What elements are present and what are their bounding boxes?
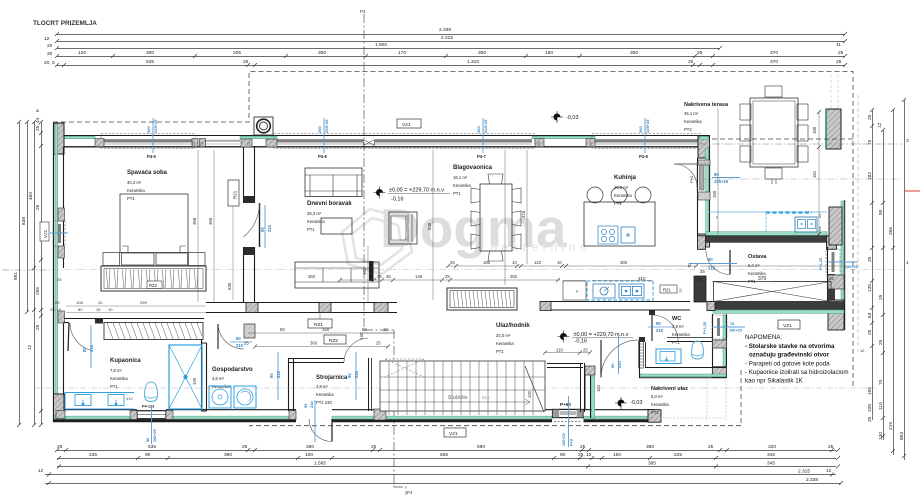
- svg-text:170: 170: [398, 50, 406, 56]
- svg-text:100: 100: [812, 126, 817, 134]
- svg-text:Ulaz/hodnik: Ulaz/hodnik: [496, 323, 530, 329]
- svg-text:360: 360: [646, 444, 654, 450]
- svg-text:210: 210: [656, 328, 664, 333]
- svg-text:25: 25: [57, 277, 62, 282]
- svg-text:655: 655: [440, 452, 448, 458]
- svg-text:Stubište: Stubište: [448, 395, 468, 401]
- svg-text:P+1,25: P+1,25: [703, 322, 707, 334]
- svg-text:P+1,25: P+1,25: [819, 258, 823, 270]
- svg-text:Ostava: Ostava: [748, 254, 767, 260]
- svg-text:1.585: 1.585: [314, 461, 326, 467]
- svg-text:25: 25: [450, 260, 455, 265]
- svg-text:25: 25: [878, 294, 884, 300]
- svg-text:320: 320: [768, 444, 776, 450]
- svg-text:530: 530: [227, 282, 232, 290]
- svg-text:90: 90: [560, 452, 566, 458]
- svg-text:300: 300: [146, 50, 154, 56]
- svg-text:-0,16: -0,16: [391, 197, 404, 203]
- svg-text:25: 25: [688, 59, 694, 65]
- svg-text:26: 26: [35, 204, 41, 210]
- svg-text:25: 25: [817, 213, 822, 218]
- svg-text:225: 225: [674, 452, 682, 458]
- svg-text:7,8 m²: 7,8 m²: [110, 368, 122, 373]
- svg-text:60: 60: [362, 327, 367, 332]
- svg-text:75: 75: [200, 142, 204, 146]
- svg-text:25: 25: [583, 348, 588, 353]
- svg-text:530: 530: [427, 222, 432, 230]
- svg-text:25, 44: 25, 44: [35, 117, 41, 131]
- svg-text:25: 25: [371, 444, 377, 450]
- svg-text:90: 90: [145, 452, 151, 458]
- svg-text:225+25: 225+25: [153, 119, 158, 133]
- svg-text:382: 382: [510, 274, 518, 279]
- svg-text:PT2: PT2: [651, 410, 659, 415]
- svg-text:25, 10: 25, 10: [578, 452, 592, 458]
- svg-text:535: 535: [146, 59, 154, 65]
- svg-text:135: 135: [867, 284, 873, 292]
- svg-text:460: 460: [362, 267, 367, 275]
- svg-text:90: 90: [878, 209, 884, 215]
- svg-text:10: 10: [557, 260, 562, 265]
- svg-text:26,3 m²: 26,3 m²: [307, 211, 322, 216]
- svg-text:1.310: 1.310: [467, 59, 479, 65]
- svg-text:Keramika: Keramika: [672, 332, 690, 337]
- svg-text:161: 161: [596, 384, 601, 392]
- svg-text:20, 5: 20, 5: [44, 60, 55, 66]
- svg-text:Keramika: Keramika: [684, 119, 702, 124]
- svg-text:205: 205: [233, 50, 241, 56]
- svg-text:Keramika: Keramika: [307, 219, 325, 224]
- svg-text:90: 90: [708, 257, 713, 262]
- svg-text:75: 75: [537, 142, 541, 146]
- svg-text:25: 25: [867, 114, 873, 120]
- svg-text:122: 122: [534, 260, 542, 265]
- svg-text:210: 210: [309, 401, 314, 408]
- svg-text:12: 12: [826, 468, 832, 474]
- svg-text:2.315: 2.315: [798, 469, 810, 475]
- svg-text:- Stolarske stavke na otvorima: - Stolarske stavke na otvorima: [745, 343, 835, 350]
- svg-text:15: 15: [96, 307, 101, 312]
- svg-text:100: 100: [305, 452, 313, 458]
- svg-text:P+0: P+0: [570, 439, 574, 446]
- svg-text:25: 25: [243, 59, 249, 65]
- svg-text:148: 148: [415, 274, 423, 279]
- svg-text:Nakrivena terasa: Nakrivena terasa: [684, 102, 729, 108]
- svg-text:105: 105: [867, 404, 873, 412]
- svg-text:PT1: PT1: [672, 340, 680, 345]
- svg-text:Keramika: Keramika: [110, 376, 128, 381]
- svg-text:25: 25: [376, 341, 381, 346]
- svg-text:150: 150: [322, 327, 330, 332]
- svg-text:25: 25: [867, 256, 873, 262]
- svg-text:300: 300: [317, 126, 322, 133]
- svg-text:210: 210: [89, 344, 94, 352]
- svg-text:12: 12: [860, 348, 865, 353]
- svg-text:300: 300: [318, 50, 326, 56]
- svg-text:3: 3: [906, 138, 909, 144]
- svg-text:P4-123: P4-123: [142, 405, 154, 409]
- svg-text:345: 345: [767, 452, 775, 458]
- svg-text:2.338: 2.338: [806, 477, 818, 483]
- svg-text:181: 181: [812, 170, 817, 178]
- svg-text:10: 10: [512, 260, 517, 265]
- svg-text:2.338: 2.338: [439, 27, 451, 33]
- svg-text:P4-5: P4-5: [147, 154, 157, 159]
- svg-text:160+25: 160+25: [562, 433, 566, 446]
- svg-text:Nakriveni ulaz: Nakriveni ulaz: [651, 386, 688, 392]
- svg-text:299: 299: [140, 300, 147, 305]
- svg-text:35: 35: [386, 274, 391, 279]
- svg-text:266: 266: [888, 227, 894, 235]
- svg-text:590: 590: [477, 444, 485, 450]
- svg-text:Keramika: Keramika: [127, 188, 145, 193]
- svg-text:30,3 m²: 30,3 m²: [127, 180, 142, 185]
- svg-text:2,9 m²: 2,9 m²: [672, 324, 684, 329]
- svg-text:Keramika: Keramika: [496, 341, 514, 346]
- svg-text:130: 130: [878, 432, 884, 440]
- svg-text:70: 70: [687, 263, 692, 268]
- svg-text:75: 75: [589, 142, 593, 146]
- svg-text:25: 25: [244, 341, 249, 346]
- svg-text:25: 25: [836, 59, 842, 65]
- svg-text:535: 535: [148, 444, 156, 450]
- svg-text:360: 360: [308, 274, 316, 279]
- svg-text:210: 210: [236, 343, 244, 348]
- svg-text:25: 25: [700, 269, 705, 274]
- svg-text:TLOCRT PRIZEMLJA: TLOCRT PRIZEMLJA: [33, 20, 97, 27]
- svg-text:20: 20: [47, 43, 53, 49]
- svg-text:180: 180: [483, 260, 491, 265]
- svg-text:12: 12: [38, 468, 44, 474]
- svg-text:25: 25: [580, 444, 586, 450]
- svg-text:V21: V21: [449, 431, 458, 437]
- svg-text:215: 215: [888, 422, 894, 430]
- svg-text:12: 12: [877, 122, 883, 128]
- svg-text:100: 100: [527, 390, 532, 398]
- svg-text:90: 90: [656, 321, 661, 326]
- svg-text:kao npr Sikalastik 1K: kao npr Sikalastik 1K: [745, 378, 804, 385]
- svg-text:356: 356: [208, 217, 213, 225]
- svg-text:označuju građevinski otvor: označuju građevinski otvor: [749, 352, 830, 359]
- svg-text:Kuhinja: Kuhinja: [614, 175, 637, 181]
- svg-text:20,0 m²: 20,0 m²: [496, 333, 511, 338]
- svg-text:P4: P4: [407, 490, 413, 495]
- svg-text:- Kupaonice izolirati sa hidro: - Kupaonice izolirati sa hidroizolaciom: [745, 369, 849, 376]
- svg-text:100+25: 100+25: [153, 429, 157, 442]
- svg-text:PT1: PT1: [307, 227, 315, 232]
- svg-text:10: 10: [108, 307, 113, 312]
- svg-text:390: 390: [224, 452, 232, 458]
- svg-text:358: 358: [192, 217, 197, 225]
- svg-text:63: 63: [817, 226, 822, 231]
- svg-text:R21: R21: [233, 190, 238, 199]
- svg-text:Strojarnica: Strojarnica: [316, 375, 348, 381]
- svg-text:Kupaonica: Kupaonica: [110, 358, 141, 364]
- svg-text:108: 108: [76, 300, 83, 305]
- svg-text:75: 75: [192, 142, 196, 146]
- svg-text:25: 25: [698, 275, 703, 280]
- svg-text:75: 75: [730, 322, 734, 326]
- svg-text:Dnevni boravak: Dnevni boravak: [307, 201, 352, 207]
- svg-text:80: 80: [82, 347, 87, 352]
- svg-text:RZ2: RZ2: [329, 338, 338, 344]
- svg-text:853: 853: [899, 432, 905, 440]
- svg-text:6: 6: [35, 109, 41, 112]
- svg-text:80: 80: [146, 438, 150, 442]
- svg-text:110: 110: [878, 402, 884, 410]
- svg-text:75: 75: [247, 142, 251, 146]
- svg-text:75: 75: [678, 288, 683, 293]
- svg-text:PT1: PT1: [496, 349, 504, 354]
- svg-text:460: 460: [28, 192, 34, 200]
- svg-text:25: 25: [708, 444, 714, 450]
- svg-text:615: 615: [482, 395, 490, 400]
- svg-text:225+25: 225+25: [324, 119, 329, 133]
- svg-text:Keramika: Keramika: [453, 183, 471, 188]
- svg-text:12: 12: [27, 344, 33, 350]
- svg-text:45,1 m²: 45,1 m²: [684, 111, 699, 116]
- svg-text:±0,00 = +229,70 m.n.v: ±0,00 = +229,70 m.n.v: [389, 188, 444, 194]
- svg-text:25: 25: [55, 300, 60, 305]
- svg-text:10: 10: [98, 300, 103, 305]
- svg-text:25: 25: [838, 50, 844, 56]
- svg-text:370: 370: [770, 59, 778, 65]
- svg-text:25: 25: [35, 324, 41, 330]
- svg-text:5,0 m²: 5,0 m²: [748, 263, 760, 268]
- svg-text:90: 90: [714, 172, 719, 177]
- svg-text:±0,00 = +229,70 m.n.v: ±0,00 = +229,70 m.n.v: [574, 332, 629, 338]
- svg-text:80: 80: [280, 327, 285, 332]
- svg-text:Blagovaonica: Blagovaonica: [453, 165, 493, 171]
- svg-text:370: 370: [770, 50, 778, 56]
- svg-text:Gospodarstvo: Gospodarstvo: [212, 367, 253, 373]
- svg-text:16,1 m²: 16,1 m²: [453, 175, 468, 180]
- svg-text:PT2: PT2: [684, 127, 692, 132]
- svg-text:25: 25: [242, 444, 248, 450]
- svg-text:P+60: P+60: [560, 402, 571, 407]
- svg-text:63: 63: [867, 312, 873, 318]
- svg-text:295: 295: [35, 287, 41, 295]
- svg-text:P4-8: P4-8: [639, 154, 649, 159]
- svg-text:25: 25: [867, 416, 873, 422]
- svg-text:1: 1: [906, 260, 909, 266]
- svg-text:140: 140: [359, 332, 364, 340]
- svg-text:-0,03: -0,03: [630, 400, 643, 406]
- svg-text:838: 838: [21, 217, 27, 225]
- svg-text:12: 12: [44, 36, 50, 42]
- svg-text:Keramika: Keramika: [614, 193, 632, 198]
- svg-text:P4-7: P4-7: [477, 154, 487, 159]
- svg-text:235: 235: [89, 452, 97, 458]
- svg-text:180: 180: [545, 50, 553, 56]
- svg-text:3,6 m²: 3,6 m²: [212, 376, 224, 381]
- svg-text:300: 300: [476, 126, 481, 133]
- svg-text:2.315: 2.315: [441, 35, 453, 41]
- svg-text:385: 385: [620, 260, 628, 265]
- svg-text:PT1: PT1: [453, 191, 461, 196]
- svg-text:310: 310: [638, 276, 646, 281]
- svg-text:210: 210: [354, 370, 359, 378]
- svg-text:25: 25: [697, 50, 703, 56]
- svg-text:225+25: 225+25: [714, 179, 729, 184]
- svg-text:300: 300: [638, 126, 643, 133]
- svg-text:90: 90: [347, 373, 352, 378]
- svg-text:300: 300: [478, 50, 486, 56]
- svg-text:225+25: 225+25: [483, 119, 488, 133]
- svg-text:25: 25: [829, 276, 834, 281]
- svg-text:182: 182: [867, 172, 873, 180]
- svg-text:P4: P4: [360, 9, 366, 14]
- svg-text:90: 90: [236, 336, 241, 341]
- svg-text:25: 25: [878, 339, 884, 345]
- svg-text:P4-6: P4-6: [318, 154, 328, 159]
- svg-text:Keramika: Keramika: [651, 402, 669, 407]
- svg-text:4,8 m²: 4,8 m²: [316, 384, 328, 389]
- svg-text:90: 90: [260, 227, 265, 232]
- svg-text:120: 120: [78, 50, 86, 56]
- svg-text:110: 110: [556, 348, 563, 353]
- svg-text:385: 385: [648, 461, 656, 467]
- svg-text:25: 25: [867, 329, 873, 335]
- svg-text:360: 360: [306, 444, 314, 450]
- svg-text:80: 80: [78, 307, 83, 312]
- svg-text:70: 70: [878, 379, 884, 385]
- svg-text:225+25: 225+25: [645, 119, 650, 133]
- svg-text:WC: WC: [672, 316, 681, 322]
- svg-text:210: 210: [267, 224, 272, 232]
- svg-text:PT1: PT1: [110, 384, 118, 389]
- svg-text:P+0: P+0: [689, 175, 694, 183]
- svg-text:Spavaća soba: Spavaća soba: [127, 170, 168, 176]
- svg-text:25, 10: 25, 10: [50, 307, 62, 312]
- svg-text:90: 90: [610, 363, 615, 368]
- svg-text:410: 410: [126, 396, 133, 401]
- svg-text:NAPOMENA:: NAPOMENA:: [745, 334, 782, 341]
- svg-text:-0,03: -0,03: [566, 115, 579, 121]
- svg-text:25: 25: [445, 274, 450, 279]
- svg-text:PT1: PT1: [127, 196, 135, 201]
- svg-text:90: 90: [303, 403, 308, 408]
- svg-text:416: 416: [521, 210, 526, 218]
- svg-text:150: 150: [712, 190, 717, 198]
- svg-text:25: 25: [377, 274, 382, 279]
- svg-text:V21: V21: [43, 229, 48, 238]
- svg-text:210: 210: [617, 361, 622, 368]
- svg-text:- Parapeti od gotove kote poda: - Parapeti od gotove kote poda: [745, 361, 830, 368]
- svg-text:25: 25: [828, 444, 834, 450]
- svg-text:360: 360: [310, 341, 318, 346]
- svg-text:300: 300: [630, 50, 638, 56]
- svg-text:20: 20: [47, 51, 53, 57]
- svg-text:11: 11: [836, 42, 841, 48]
- svg-text:25: 25: [57, 444, 63, 450]
- svg-text:PT1 230: PT1 230: [316, 400, 333, 405]
- svg-text:10: 10: [383, 327, 388, 332]
- svg-text:-0,16: -0,16: [575, 339, 588, 345]
- svg-text:100+25: 100+25: [845, 265, 858, 269]
- svg-text:90: 90: [269, 373, 274, 378]
- svg-text:1.900: 1.900: [375, 42, 387, 48]
- svg-text:345: 345: [767, 461, 775, 467]
- svg-text:891: 891: [13, 272, 19, 280]
- svg-text:300: 300: [146, 126, 151, 133]
- svg-text:Keramika: Keramika: [316, 392, 334, 397]
- svg-text:RZ2: RZ2: [149, 283, 158, 288]
- svg-text:150: 150: [613, 452, 621, 458]
- svg-text:V21: V21: [402, 122, 411, 128]
- svg-text:195: 195: [192, 377, 197, 385]
- svg-text:VZ1: VZ1: [783, 323, 792, 329]
- svg-text:R21: R21: [663, 287, 671, 292]
- svg-text:6,0 m²: 6,0 m²: [651, 394, 663, 399]
- svg-text:210: 210: [276, 370, 281, 378]
- svg-text:210: 210: [708, 266, 716, 271]
- svg-text:100+25: 100+25: [729, 329, 742, 333]
